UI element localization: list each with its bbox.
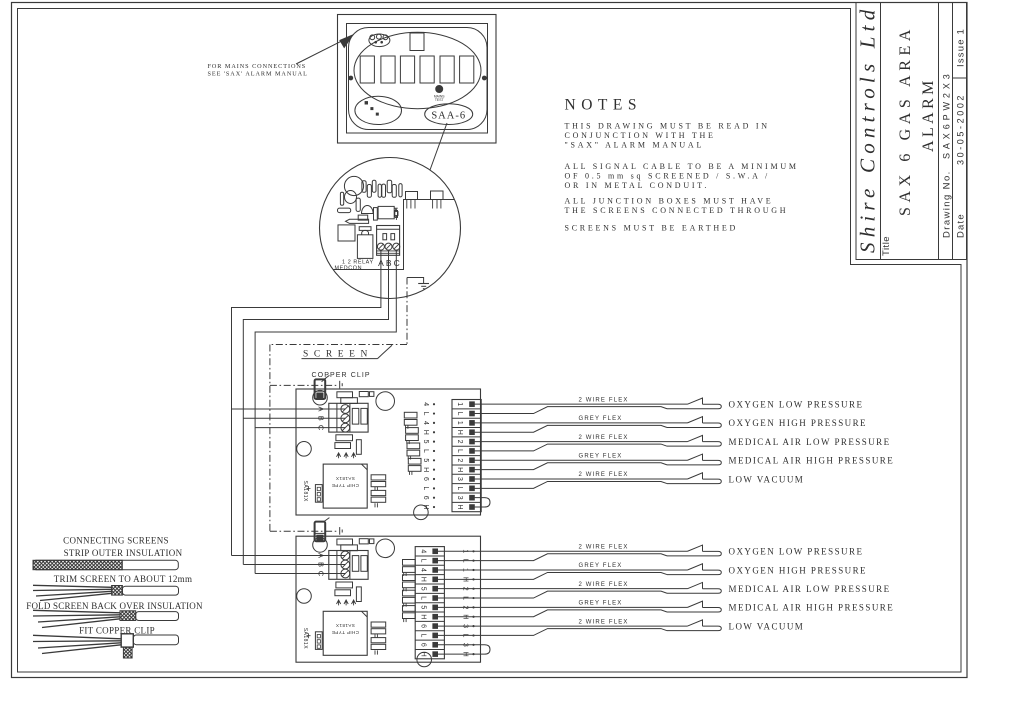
svg-text:CONNECTING SCREENS: CONNECTING SCREENS [63, 535, 169, 545]
svg-text:ALL SIGNAL CABLE TO BE A MINIM: ALL SIGNAL CABLE TO BE A MINIMUM [565, 162, 799, 171]
svg-text:SCREENS MUST BE EARTHED: SCREENS MUST BE EARTHED [565, 223, 739, 232]
svg-text:SEE 'SAX' ALARM MANUAL: SEE 'SAX' ALARM MANUAL [208, 70, 308, 77]
svg-text:5: 5 [422, 440, 429, 444]
svg-text:A: A [316, 553, 325, 558]
svg-text:L: L [422, 449, 429, 453]
svg-text:6: 6 [422, 496, 429, 500]
svg-text:2 WIRE FLEX: 2 WIRE FLEX [579, 582, 629, 588]
svg-text:2 WIRE FLEX: 2 WIRE FLEX [579, 397, 629, 403]
svg-text:LOW VACUUM: LOW VACUUM [729, 621, 805, 631]
svg-text:OXYGEN LOW PRESSURE: OXYGEN LOW PRESSURE [729, 399, 864, 409]
svg-text:TEST: TEST [435, 98, 444, 102]
svg-text:2: 2 [456, 440, 463, 444]
svg-text:4: 4 [422, 402, 429, 406]
svg-text:SA181X: SA181X [336, 623, 355, 628]
svg-text:GREY FLEX: GREY FLEX [579, 601, 623, 607]
svg-text:SA181X: SA181X [336, 476, 355, 481]
svg-text:SAX 6 GAS AREA: SAX 6 GAS AREA [897, 25, 914, 216]
svg-text:OXYGEN HIGH PRESSURE: OXYGEN HIGH PRESSURE [729, 418, 868, 428]
svg-text:L: L [422, 412, 429, 416]
svg-text:ALARM: ALARM [920, 77, 937, 152]
svg-text:TRIM SCREEN TO ABOUT 12mm: TRIM SCREEN TO ABOUT 12mm [54, 574, 193, 584]
svg-text:CHIP TYPE: CHIP TYPE [331, 483, 359, 488]
svg-text:GREY FLEX: GREY FLEX [579, 416, 623, 422]
svg-text:L: L [422, 486, 429, 490]
svg-text:FOLD SCREEN BACK OVER INSULATI: FOLD SCREEN BACK OVER INSULATION [26, 601, 203, 611]
svg-text:L: L [419, 596, 426, 600]
svg-text:2 WIRE FLEX: 2 WIRE FLEX [579, 619, 629, 625]
svg-text:SCREEN: SCREEN [303, 350, 373, 360]
svg-text:MEDICAL AIR HIGH PRESSURE: MEDICAL AIR HIGH PRESSURE [729, 456, 895, 466]
svg-text:6: 6 [422, 477, 429, 481]
svg-text:H: H [456, 467, 463, 472]
svg-text:H: H [419, 577, 426, 582]
svg-text:SA181X: SA181X [302, 628, 308, 650]
svg-text:H: H [419, 652, 426, 657]
svg-text:GREY FLEX: GREY FLEX [579, 453, 623, 459]
svg-text:H: H [456, 430, 463, 435]
svg-text:THE SCREENS CONNECTED THROUGH: THE SCREENS CONNECTED THROUGH [565, 206, 789, 215]
svg-text:L: L [456, 449, 463, 453]
svg-text:6: 6 [419, 643, 426, 647]
svg-text:CHIP TYPE: CHIP TYPE [331, 630, 359, 635]
svg-text:2: 2 [456, 458, 463, 462]
svg-text:L: L [456, 412, 463, 416]
svg-text:1: 1 [456, 402, 463, 406]
svg-text:MEDICAL AIR LOW PRESSURE: MEDICAL AIR LOW PRESSURE [729, 437, 891, 447]
svg-text:4: 4 [419, 549, 426, 553]
svg-text:L: L [419, 633, 426, 637]
svg-text:B: B [316, 416, 325, 421]
svg-text:H: H [422, 467, 429, 472]
svg-text:OR IN METAL CONDUIT.: OR IN METAL CONDUIT. [565, 181, 710, 190]
svg-text:NOTES: NOTES [565, 97, 642, 114]
svg-text:GREY FLEX: GREY FLEX [579, 563, 623, 569]
svg-text:H: H [419, 614, 426, 619]
svg-text:MEDICAL AIR LOW PRESSURE: MEDICAL AIR LOW PRESSURE [729, 584, 891, 594]
svg-text:H: H [456, 504, 463, 509]
svg-text:2 WIRE FLEX: 2 WIRE FLEX [579, 544, 629, 550]
svg-text:COPPER CLIP: COPPER CLIP [312, 372, 371, 379]
svg-text:5: 5 [422, 458, 429, 462]
svg-text:THIS DRAWING MUST BE READ IN: THIS DRAWING MUST BE READ IN [565, 122, 770, 131]
svg-text:"SAX" ALARM MANUAL: "SAX" ALARM MANUAL [565, 140, 705, 149]
svg-text:Issue 1: Issue 1 [956, 28, 967, 67]
svg-text:5: 5 [419, 605, 426, 609]
svg-text:L: L [419, 559, 426, 563]
svg-text:L: L [456, 486, 463, 490]
svg-text:C: C [316, 571, 325, 577]
svg-text:1: 1 [456, 421, 463, 425]
svg-text:Title: Title [881, 236, 892, 256]
svg-text:5: 5 [419, 587, 426, 591]
svg-text:FOR MAINS CONNECTIONS: FOR MAINS CONNECTIONS [208, 63, 307, 70]
svg-text:4: 4 [419, 568, 426, 572]
svg-text:C: C [316, 425, 325, 431]
svg-text:SAX6PW2X3: SAX6PW2X3 [942, 70, 952, 159]
svg-text:H: H [422, 505, 429, 510]
svg-text:OXYGEN HIGH PRESSURE: OXYGEN HIGH PRESSURE [729, 565, 868, 575]
svg-text:MEDICAL AIR HIGH PRESSURE: MEDICAL AIR HIGH PRESSURE [729, 603, 895, 613]
svg-text:4: 4 [422, 421, 429, 425]
svg-text:2 WIRE FLEX: 2 WIRE FLEX [579, 472, 629, 478]
svg-text:OF 0.5 mm sq SCREENED / S.W.A: OF 0.5 mm sq SCREENED / S.W.A / [565, 171, 770, 180]
svg-text:LOW VACUUM: LOW VACUUM [729, 474, 805, 484]
svg-text:FIT COPPER CLIP: FIT COPPER CLIP [79, 626, 155, 636]
svg-text:ALL JUNCTION BOXES MUST HAVE: ALL JUNCTION BOXES MUST HAVE [565, 197, 774, 206]
svg-text:SA181X: SA181X [302, 481, 308, 503]
svg-text:2 WIRE FLEX: 2 WIRE FLEX [579, 435, 629, 441]
svg-text:Shire Controls Ltd: Shire Controls Ltd [856, 5, 880, 253]
svg-text:30-05-2002: 30-05-2002 [956, 93, 966, 165]
svg-text:Drawing No.: Drawing No. [942, 170, 953, 238]
svg-text:6: 6 [419, 624, 426, 628]
svg-text:3: 3 [456, 496, 463, 500]
svg-text:A: A [316, 406, 325, 411]
svg-text:MEDCON: MEDCON [335, 265, 363, 271]
svg-text:Date: Date [956, 213, 967, 238]
svg-text:3: 3 [456, 477, 463, 481]
svg-text:CONJUNCTION WITH THE: CONJUNCTION WITH THE [565, 131, 716, 140]
svg-text:STRIP OUTER INSULATION: STRIP OUTER INSULATION [64, 548, 183, 558]
svg-text:B: B [316, 562, 325, 567]
svg-text:H: H [422, 430, 429, 435]
svg-text:OXYGEN LOW PRESSURE: OXYGEN LOW PRESSURE [729, 547, 864, 557]
svg-text:SAA-6: SAA-6 [431, 110, 466, 121]
